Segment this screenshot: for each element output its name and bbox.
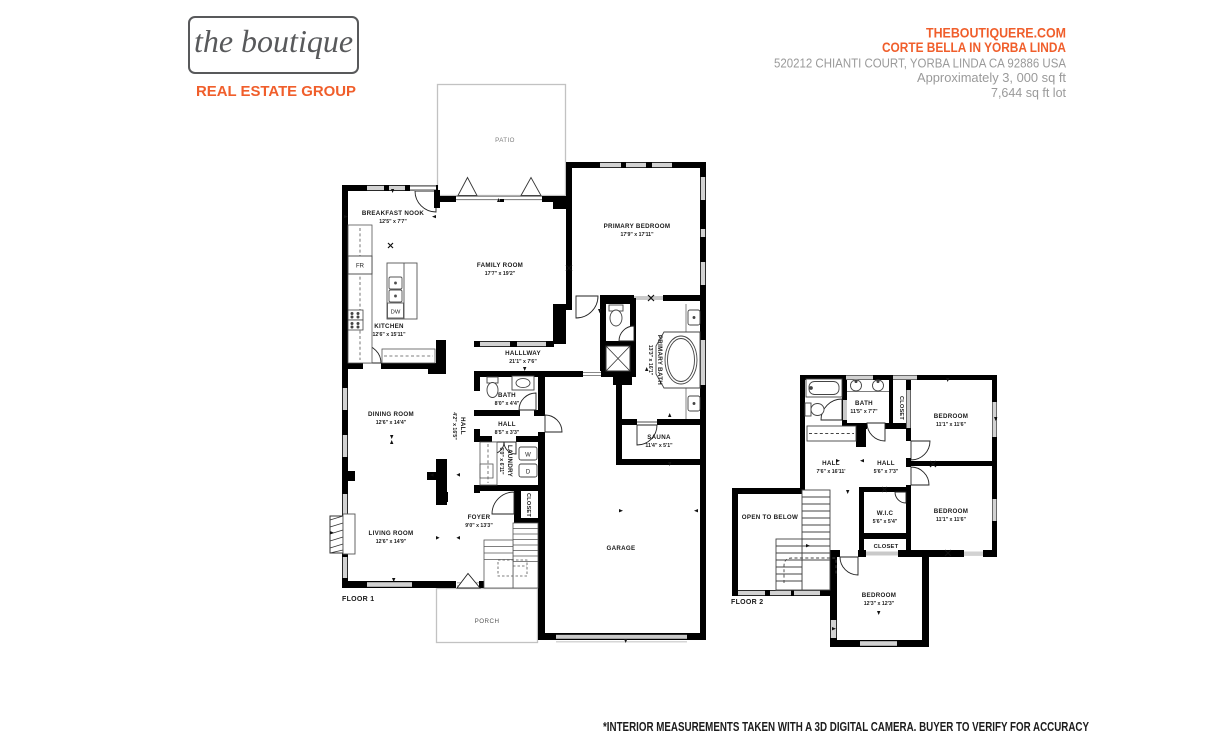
svg-text:BEDROOM: BEDROOM	[862, 592, 896, 599]
svg-text:12'6" x 14'9": 12'6" x 14'9"	[376, 539, 407, 545]
svg-text:SAUNA: SAUNA	[647, 434, 671, 441]
svg-text:DINING ROOM: DINING ROOM	[368, 411, 414, 418]
svg-text:11'5" x 7'7": 11'5" x 7'7"	[850, 409, 878, 415]
svg-text:FOYER: FOYER	[468, 514, 491, 521]
svg-text:KITCHEN: KITCHEN	[374, 323, 404, 330]
svg-text:W: W	[525, 453, 531, 459]
svg-text:HALL: HALL	[498, 421, 516, 428]
svg-text:8'0" x 4'4": 8'0" x 4'4"	[495, 401, 520, 407]
svg-text:W.I.C: W.I.C	[877, 510, 894, 517]
svg-text:PRIMARY BATH: PRIMARY BATH	[656, 335, 663, 385]
svg-text:12'3" x 12'3": 12'3" x 12'3"	[864, 601, 895, 607]
svg-text:11'1" x 11'6": 11'1" x 11'6"	[936, 517, 966, 523]
svg-text:9'0" x 13'3": 9'0" x 13'3"	[465, 523, 493, 529]
svg-text:LIVING ROOM: LIVING ROOM	[369, 530, 414, 537]
svg-text:HALL: HALL	[877, 460, 895, 467]
svg-text:5'6" x 5'4": 5'6" x 5'4"	[873, 519, 898, 525]
svg-text:D: D	[526, 470, 531, 476]
svg-text:*INTERIOR MEASUREMENTS TAKEN W: *INTERIOR MEASUREMENTS TAKEN WITH A 3D D…	[603, 719, 1089, 734]
svg-text:17'7" x 19'2": 17'7" x 19'2"	[485, 271, 516, 277]
svg-text:GARAGE: GARAGE	[607, 545, 636, 552]
svg-text:FR: FR	[356, 264, 365, 270]
svg-text:FAMILY ROOM: FAMILY ROOM	[477, 262, 523, 269]
svg-text:CLOSET: CLOSET	[525, 493, 531, 517]
svg-text:CLOSET: CLOSET	[874, 544, 899, 550]
svg-text:12'6" x 14'4": 12'6" x 14'4"	[376, 420, 407, 426]
svg-text:BATH: BATH	[498, 392, 516, 399]
svg-text:5'6" x 7'3": 5'6" x 7'3"	[874, 469, 899, 475]
svg-text:BEDROOM: BEDROOM	[934, 413, 968, 420]
svg-text:OPEN TO BELOW: OPEN TO BELOW	[742, 514, 798, 521]
svg-text:13'3" x 16'1": 13'3" x 16'1"	[647, 345, 653, 376]
svg-text:4'2" x 16'5": 4'2" x 16'5"	[451, 412, 457, 440]
svg-text:BEDROOM: BEDROOM	[934, 508, 968, 515]
svg-text:11'1" x 11'6": 11'1" x 11'6"	[936, 422, 966, 428]
svg-text:FLOOR 2: FLOOR 2	[731, 599, 763, 606]
svg-text:PORCH: PORCH	[475, 618, 500, 625]
svg-text:6'0" x 6'11": 6'0" x 6'11"	[498, 447, 504, 475]
svg-text:HALL: HALL	[459, 417, 466, 435]
svg-text:PATIO: PATIO	[495, 137, 515, 144]
svg-text:FLOOR 1: FLOOR 1	[342, 596, 374, 603]
svg-text:12'5" x 7'7": 12'5" x 7'7"	[379, 219, 407, 225]
svg-text:PRIMARY BEDROOM: PRIMARY BEDROOM	[604, 223, 671, 230]
svg-text:DW: DW	[391, 310, 401, 316]
svg-text:CLOSET: CLOSET	[898, 396, 904, 420]
svg-text:LAUNDRY: LAUNDRY	[506, 445, 513, 478]
svg-text:7'6" x 16'11': 7'6" x 16'11'	[817, 469, 846, 475]
svg-text:8'5" x 3'3": 8'5" x 3'3"	[495, 430, 520, 436]
svg-text:21'1" x 7'6": 21'1" x 7'6"	[509, 359, 537, 365]
svg-text:HALLLWAY: HALLLWAY	[505, 350, 541, 357]
svg-text:12'6" x 15'11": 12'6" x 15'11"	[372, 332, 406, 338]
svg-text:17'9" x 17'11": 17'9" x 17'11"	[620, 232, 654, 238]
svg-text:BREAKFAST NOOK: BREAKFAST NOOK	[362, 210, 425, 217]
svg-text:BATH: BATH	[855, 400, 873, 407]
svg-text:11'4" x 5'1": 11'4" x 5'1"	[645, 443, 673, 449]
